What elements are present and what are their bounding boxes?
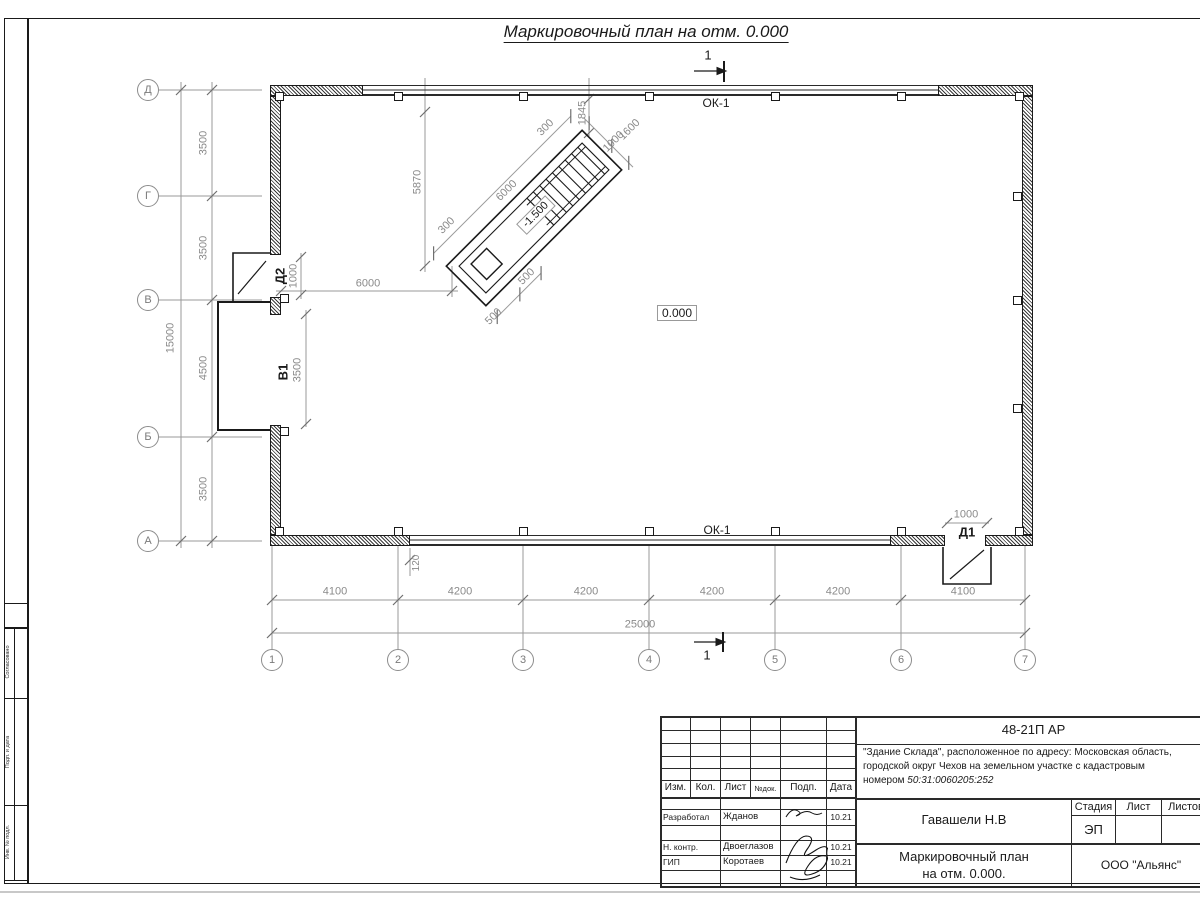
- tb-sheet-label: Лист: [1116, 802, 1161, 813]
- axis-label: 3: [520, 654, 526, 666]
- tb-doc-number: 48-21П АР: [855, 723, 1200, 736]
- tb-stage-value: ЭП: [1072, 823, 1115, 836]
- tb-header-izm: Изм.: [661, 783, 690, 793]
- column-marker: [275, 527, 284, 536]
- axis-bubble-2: 2: [387, 649, 409, 671]
- tb-sheets-label: Листов: [1162, 802, 1200, 813]
- tb-address-line3: номером 50:31:0060205:252: [863, 776, 994, 786]
- axis-label: 2: [395, 654, 401, 666]
- axis-label: Б: [144, 431, 151, 443]
- column-marker: [280, 427, 289, 436]
- tb-chief: Гавашели Н.В: [857, 813, 1071, 826]
- tb-stage-label: Стадия: [1072, 802, 1115, 813]
- tb-line: [660, 716, 1200, 718]
- axis-label: В: [144, 294, 151, 306]
- column-marker: [1015, 92, 1024, 101]
- axis-bubble-3: 3: [512, 649, 534, 671]
- wall-left-top: [270, 96, 281, 255]
- elevation-zero-mark: 0.000: [657, 305, 697, 321]
- dim-ramp-1845: 1845: [578, 101, 589, 125]
- window-label-top: ОК-1: [703, 97, 730, 109]
- axis-label: 6: [898, 654, 904, 666]
- tb-cadastral-number: 50:31:0060205:252: [907, 775, 993, 786]
- column-marker: [897, 527, 906, 536]
- tb-role-developer: Разработал: [663, 813, 709, 822]
- gate-label-v1: В1: [277, 364, 290, 381]
- column-marker: [897, 92, 906, 101]
- column-marker: [280, 294, 289, 303]
- dim-wall-offset: 120: [412, 555, 422, 572]
- dim-col-total: 25000: [625, 620, 656, 631]
- wall-bottom-3: [985, 535, 1033, 546]
- door-label-d1: Д1: [959, 526, 976, 539]
- dim-door-right: 1000: [954, 510, 978, 521]
- dim-door-left: 1000: [289, 264, 300, 288]
- tb-name-developer: Жданов: [723, 812, 758, 822]
- tb-line: [660, 716, 662, 888]
- tb-header-list: Лист: [721, 783, 750, 793]
- dim-row-total: 15000: [166, 323, 177, 354]
- tb-date-gip: 10.21: [827, 858, 855, 867]
- tb-role-ncontrol: Н. контр.: [663, 843, 698, 852]
- tb-date-ncontrol: 10.21: [827, 843, 855, 852]
- tb-line: [660, 886, 1200, 888]
- axis-bubble-b: Б: [137, 426, 159, 448]
- signature-developer: [782, 805, 826, 823]
- dim-gate: 3500: [293, 358, 304, 382]
- axis-bubble-g: Г: [137, 185, 159, 207]
- section-mark-top: 1: [704, 49, 711, 62]
- axis-label: Д: [144, 84, 151, 96]
- column-marker: [1013, 192, 1022, 201]
- wall-bottom-2: [890, 535, 945, 546]
- dim-ramp-height: 5870: [413, 170, 424, 194]
- tb-line: [1071, 815, 1200, 816]
- axis-bubble-1: 1: [261, 649, 283, 671]
- column-marker: [645, 527, 654, 536]
- axis-bubble-d: Д: [137, 79, 159, 101]
- tb-line: [855, 798, 1200, 800]
- signature-gip: [780, 833, 828, 885]
- column-marker: [771, 527, 780, 536]
- dim-col: 4200: [448, 587, 472, 598]
- wall-left-bottom: [270, 425, 281, 535]
- dim-col: 4100: [323, 587, 347, 598]
- axis-label: А: [144, 535, 151, 547]
- axis-label: 7: [1022, 654, 1028, 666]
- drawing-sheet: Согласовано Подп. и дата Инв. № подл. Ма…: [0, 0, 1200, 900]
- wall-bottom-1: [270, 535, 410, 546]
- tb-line: [720, 716, 721, 888]
- tb-name-gip: Коротаев: [723, 857, 764, 867]
- column-marker: [771, 92, 780, 101]
- dim-col: 4200: [574, 587, 598, 598]
- tb-address-line2: городской округ Чехов на земельном участ…: [863, 762, 1145, 772]
- axis-bubble-6: 6: [890, 649, 912, 671]
- window-label-bottom: ОК-1: [704, 524, 731, 536]
- column-marker: [394, 92, 403, 101]
- axis-bubble-5: 5: [764, 649, 786, 671]
- dim-gate-to-ramp: 6000: [356, 279, 380, 290]
- tb-drawing-title-1: Маркировочный план: [857, 850, 1071, 863]
- axis-label: 5: [772, 654, 778, 666]
- tb-name-ncontrol: Двоеглазов: [723, 842, 774, 852]
- dim-row: 3500: [199, 236, 210, 260]
- tb-company: ООО "Альянс": [1072, 859, 1200, 871]
- column-marker: [394, 527, 403, 536]
- tb-header-kol: Кол.: [691, 783, 720, 793]
- tb-header-ndok: №док.: [751, 785, 780, 793]
- dim-row: 3500: [199, 131, 210, 155]
- window-band-bottom: [410, 535, 890, 546]
- column-marker: [1015, 527, 1024, 536]
- tb-date-developer: 10.21: [827, 813, 855, 822]
- tb-drawing-title-2: на отм. 0.000.: [857, 867, 1071, 880]
- wall-right: [1022, 96, 1033, 535]
- tb-header-data: Дата: [827, 783, 855, 793]
- column-marker: [275, 92, 284, 101]
- column-marker: [519, 527, 528, 536]
- column-marker: [645, 92, 654, 101]
- tb-header-podp: Подп.: [781, 783, 826, 793]
- tb-line: [855, 843, 1200, 845]
- dim-col: 4200: [700, 587, 724, 598]
- tb-address-prefix: номером: [863, 775, 907, 786]
- axis-bubble-a: А: [137, 530, 159, 552]
- tb-line: [855, 744, 1200, 745]
- axis-bubble-4: 4: [638, 649, 660, 671]
- axis-bubble-7: 7: [1014, 649, 1036, 671]
- axis-label: 4: [646, 654, 652, 666]
- dim-row: 4500: [199, 356, 210, 380]
- section-mark-bottom: 1: [703, 649, 710, 662]
- dim-col: 4200: [826, 587, 850, 598]
- axis-label: Г: [145, 190, 151, 202]
- dim-row: 3500: [199, 477, 210, 501]
- column-marker: [1013, 296, 1022, 305]
- door-label-d2: Д2: [274, 268, 287, 285]
- tb-role-gip: ГИП: [663, 858, 680, 867]
- axis-label: 1: [269, 654, 275, 666]
- axis-bubble-v: В: [137, 289, 159, 311]
- column-marker: [519, 92, 528, 101]
- dim-col: 4100: [951, 587, 975, 598]
- column-marker: [1013, 404, 1022, 413]
- tb-address-line1: "Здание Склада", расположенное по адресу…: [863, 748, 1172, 758]
